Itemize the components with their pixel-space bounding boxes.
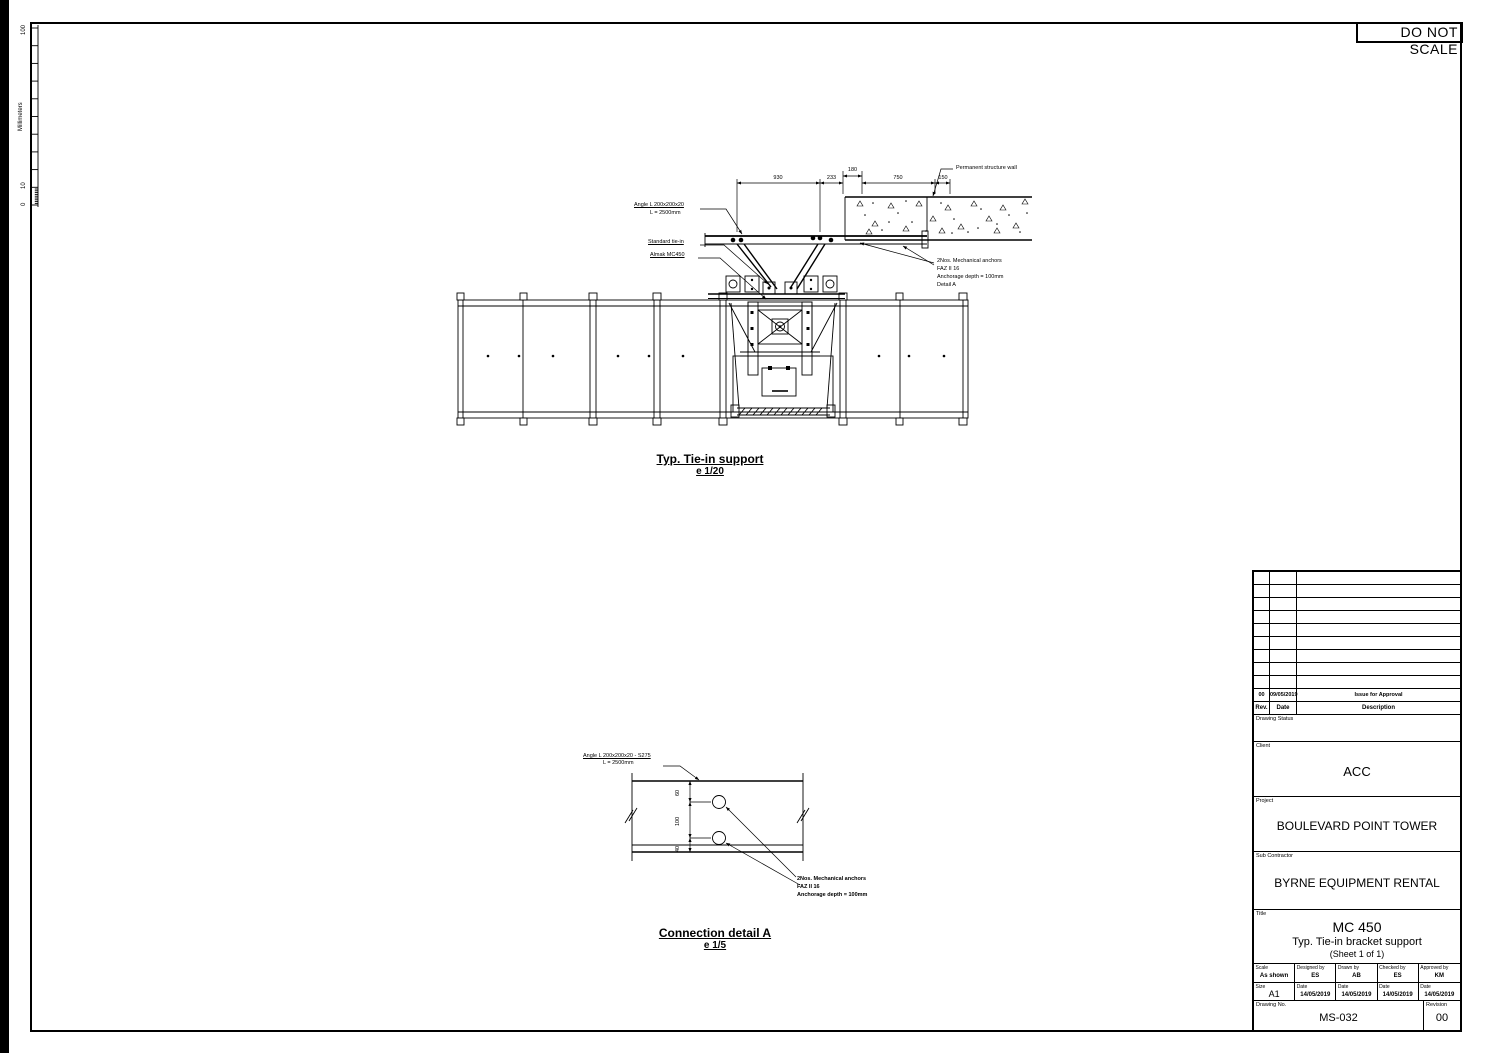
- ruler-label-100: 100: [21, 25, 27, 35]
- drawing-title-line1: MC 450: [1254, 919, 1460, 935]
- anchors-note-line1: 2Nos. Mechanical anchors: [937, 258, 1002, 265]
- meta-row-people: ScaleAs shown Designed byES Drawn byAB C…: [1254, 964, 1460, 983]
- dim-750: 750: [886, 175, 910, 181]
- dim-930: 930: [766, 175, 790, 181]
- drawing-title-line2: Typ. Tie-in bracket support: [1254, 936, 1460, 948]
- anchors-note-line3: Anchorage depth = 100mm: [937, 274, 1004, 281]
- subcontractor-box: Sub Contractor BYRNE EQUIPMENT RENTAL: [1254, 852, 1460, 910]
- top-drawing-title: Typ. Tie-in support: [635, 452, 785, 466]
- drawing-title-line3: (Sheet 1 of 1): [1254, 949, 1460, 959]
- revision-row-date: 09/05/2019: [1270, 689, 1297, 701]
- angle-length-label: L = 2500mm: [650, 210, 681, 217]
- drawn-date: 14/05/2019: [1336, 992, 1376, 998]
- drawn-by-value: AB: [1336, 973, 1376, 979]
- checked-date: 14/05/2019: [1378, 992, 1418, 998]
- revision-row-rev: 00: [1254, 689, 1270, 701]
- ruler-unit-label: Millimeters: [18, 102, 24, 131]
- top-drawing-scale: e 1/20: [635, 466, 785, 477]
- detail-dim-40: 40: [675, 846, 681, 852]
- sheet-frame: [31, 23, 1461, 1031]
- revision-header-row: Rev. Date Description: [1254, 702, 1460, 715]
- standard-tiein-label: Standard tie-in: [648, 239, 684, 246]
- approved-date: 14/05/2019: [1419, 992, 1460, 998]
- anchors-note-line2: FAZ II 16: [937, 266, 959, 273]
- revision-row-description: Issue for Approval: [1297, 689, 1460, 701]
- drawing-status-box: Drawing Status: [1254, 715, 1460, 742]
- scale-value: As shown: [1254, 973, 1294, 979]
- anchors-note-line4: Detail A: [937, 282, 956, 289]
- project-name: BOULEVARD POINT TOWER: [1254, 819, 1460, 833]
- dim-180: 180: [843, 167, 862, 173]
- angle-label: Angle L 200x200x20: [634, 202, 684, 209]
- detail-scale: e 1/5: [640, 940, 790, 951]
- client-box: Client ACC: [1254, 742, 1460, 797]
- client-name: ACC: [1254, 764, 1460, 779]
- dim-150: 150: [931, 175, 955, 181]
- ruler-label-10: 10: [21, 182, 27, 189]
- ruler-label-0: 0: [21, 203, 27, 206]
- drawing-sheet: { "sheet": { "do_not_scale": "DO NOT SCA…: [0, 0, 1490, 1053]
- checked-by-value: ES: [1378, 973, 1418, 979]
- drawing-number: MS-032: [1254, 1012, 1423, 1024]
- ruler-ticks: [32, 25, 38, 207]
- machine-label: Almak MC450: [650, 252, 685, 259]
- drawing-title-box: Title MC 450 Typ. Tie-in bracket support…: [1254, 910, 1460, 964]
- tiein-plan-mast: [729, 302, 837, 417]
- top-leaders: [698, 169, 953, 299]
- designed-date: 14/05/2019: [1295, 992, 1335, 998]
- detail-dim-60: 60: [675, 790, 681, 796]
- size-value: A1: [1254, 989, 1294, 999]
- revision-table: 00 09/05/2019 Issue for Approval Rev. Da…: [1254, 572, 1460, 715]
- approved-by-value: KM: [1419, 973, 1460, 979]
- detail-angle-length-label: L = 2500mm: [603, 760, 634, 767]
- subcontractor-name: BYRNE EQUIPMENT RENTAL: [1254, 876, 1460, 890]
- drawing-number-row: Drawing No. MS-032 Revision 00: [1254, 1001, 1460, 1030]
- dim-233: 233: [820, 175, 843, 181]
- detail-anchors-line3: Anchorage depth = 100mm: [797, 892, 867, 899]
- tiein-bracket: [705, 231, 928, 299]
- wall-label: Permanent structure wall: [956, 165, 1017, 172]
- tiein-plan-deck: [457, 293, 968, 425]
- detail-title: Connection detail A: [640, 926, 790, 940]
- detail-a-linework: [625, 766, 809, 885]
- do-not-scale-note: DO NOT SCALE: [1356, 22, 1463, 43]
- detail-anchors-line2: FAZ II 16: [797, 884, 820, 891]
- detail-anchors-line1: 2Nos. Mechanical anchors: [797, 876, 866, 883]
- designed-by-value: ES: [1295, 973, 1335, 979]
- permanent-wall: [845, 197, 1032, 240]
- detail-dim-100: 100: [675, 817, 681, 826]
- meta-row-dates: SizeA1 Date14/05/2019 Date14/05/2019 Dat…: [1254, 983, 1460, 1001]
- title-block: 00 09/05/2019 Issue for Approval Rev. Da…: [1252, 570, 1462, 1032]
- revision-row: 00 09/05/2019 Issue for Approval: [1254, 689, 1460, 702]
- project-box: Project BOULEVARD POINT TOWER: [1254, 797, 1460, 852]
- revision-number: 00: [1424, 1012, 1460, 1024]
